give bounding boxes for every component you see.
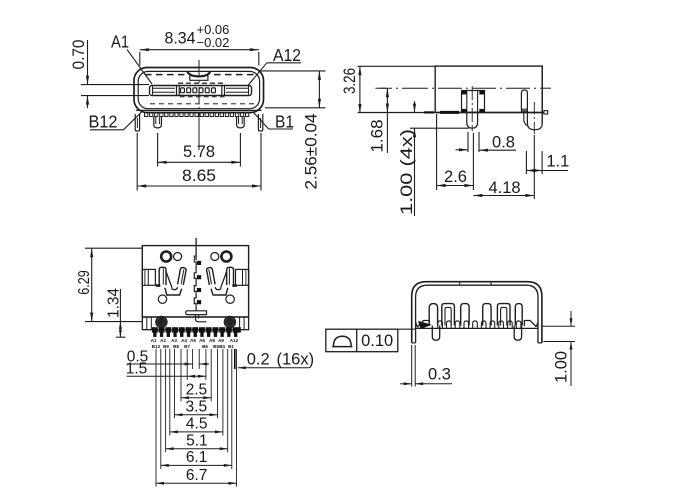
svg-text:B8: B8 — [173, 344, 179, 349]
svg-text:1.00: 1.00 — [552, 351, 571, 383]
svg-text:0.2: 0.2 — [247, 350, 270, 368]
svg-text:1.1: 1.1 — [546, 153, 569, 171]
svg-text:A3: A3 — [171, 338, 177, 343]
svg-text:6.29: 6.29 — [76, 270, 93, 295]
svg-text:B12: B12 — [152, 344, 161, 349]
svg-text:5.1: 5.1 — [186, 432, 208, 449]
svg-text:B6: B6 — [202, 344, 208, 349]
svg-text:1.5: 1.5 — [126, 361, 148, 378]
svg-text:A2: A2 — [160, 338, 166, 343]
svg-text:1.00 (4x): 1.00 (4x) — [397, 129, 416, 215]
svg-text:0.3: 0.3 — [428, 366, 451, 384]
svg-text:B1: B1 — [228, 344, 234, 349]
svg-text:3.26: 3.26 — [340, 68, 359, 94]
svg-text:A4: A4 — [181, 338, 187, 343]
svg-text:3.5: 3.5 — [186, 398, 208, 415]
svg-text:2.56±0.04: 2.56±0.04 — [302, 114, 321, 190]
svg-text:2.6: 2.6 — [444, 168, 467, 186]
svg-text:8.65: 8.65 — [182, 166, 216, 185]
svg-text:A5: A5 — [190, 338, 196, 343]
svg-text:A9: A9 — [218, 338, 224, 343]
svg-text:4.5: 4.5 — [186, 416, 208, 433]
svg-text:B7: B7 — [184, 344, 190, 349]
svg-text:B12: B12 — [89, 112, 118, 132]
svg-text:1.34: 1.34 — [105, 288, 122, 318]
svg-text:2.5: 2.5 — [186, 381, 208, 398]
svg-text:8.34: 8.34 — [165, 29, 196, 48]
svg-text:−0.02: −0.02 — [197, 35, 230, 50]
svg-text:6.1: 6.1 — [186, 449, 208, 466]
svg-text:0.10: 0.10 — [361, 332, 393, 350]
svg-text:A12: A12 — [273, 45, 301, 65]
svg-text:5.78: 5.78 — [183, 142, 215, 161]
svg-text:A8: A8 — [209, 338, 215, 343]
svg-text:0.8: 0.8 — [492, 134, 515, 152]
svg-text:(16x): (16x) — [277, 350, 315, 368]
svg-text:A6: A6 — [199, 338, 205, 343]
svg-text:4.18: 4.18 — [488, 179, 520, 197]
svg-text:B9: B9 — [163, 344, 169, 349]
svg-text:A1: A1 — [151, 338, 157, 343]
svg-text:B4: B4 — [219, 344, 225, 349]
svg-text:6.7: 6.7 — [186, 467, 208, 484]
svg-text:A1: A1 — [111, 32, 129, 52]
svg-text:A12: A12 — [230, 338, 239, 343]
svg-text:0.70: 0.70 — [69, 40, 88, 70]
svg-text:1.68: 1.68 — [368, 120, 387, 153]
